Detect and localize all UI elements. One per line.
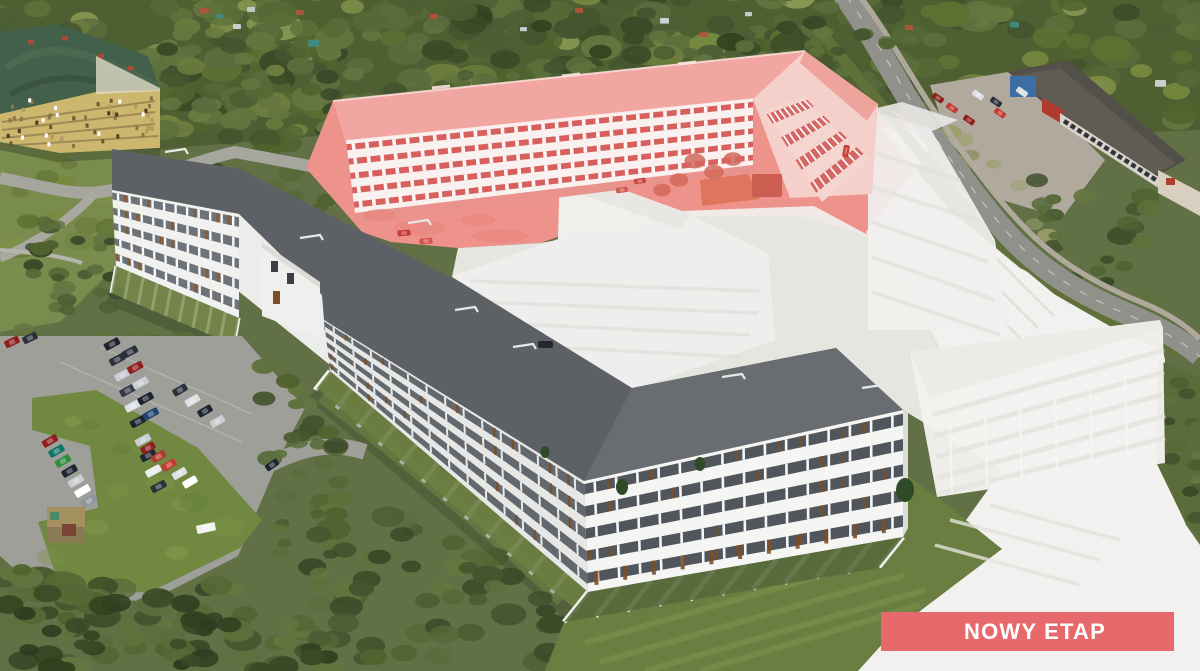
svg-text:NOWY ETAP: NOWY ETAP	[964, 619, 1106, 644]
